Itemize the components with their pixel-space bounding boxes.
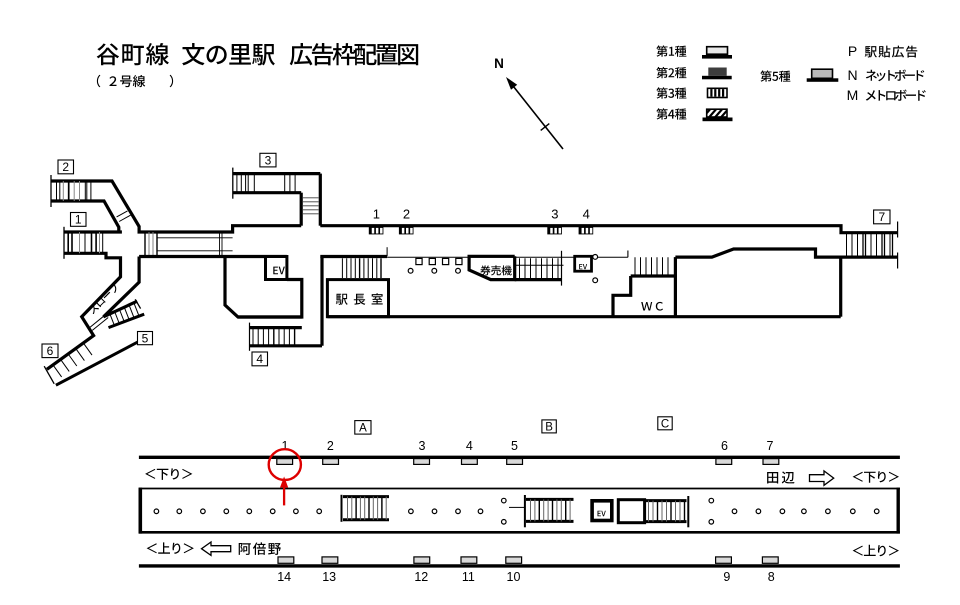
svg-text:2: 2 xyxy=(327,439,334,453)
svg-text:12: 12 xyxy=(414,570,428,584)
svg-text:4: 4 xyxy=(466,439,473,453)
svg-text:A: A xyxy=(359,422,367,434)
svg-text:3: 3 xyxy=(265,153,272,167)
svg-text:9: 9 xyxy=(723,570,730,584)
svg-text:M: M xyxy=(847,87,859,103)
svg-text:1: 1 xyxy=(373,207,380,222)
svg-text:10: 10 xyxy=(507,570,521,584)
svg-text:3: 3 xyxy=(551,207,558,222)
svg-text:3: 3 xyxy=(419,439,426,453)
svg-text:7: 7 xyxy=(767,439,774,453)
svg-text:8: 8 xyxy=(768,570,775,584)
svg-text:4: 4 xyxy=(583,207,590,222)
svg-text:6: 6 xyxy=(47,344,54,358)
svg-text:6: 6 xyxy=(721,439,728,453)
svg-text:1: 1 xyxy=(282,439,289,453)
svg-text:N: N xyxy=(494,56,504,71)
svg-text:14: 14 xyxy=(277,570,291,584)
svg-text:5: 5 xyxy=(511,439,518,453)
svg-text:N: N xyxy=(847,67,857,83)
svg-text:2: 2 xyxy=(62,160,69,174)
svg-text:13: 13 xyxy=(322,570,336,584)
svg-text:11: 11 xyxy=(462,570,475,584)
svg-text:1: 1 xyxy=(75,213,82,227)
svg-text:4: 4 xyxy=(256,352,263,366)
svg-text:2: 2 xyxy=(403,207,410,222)
svg-text:P: P xyxy=(848,43,857,59)
svg-text:C: C xyxy=(661,418,669,430)
svg-text:5: 5 xyxy=(142,331,149,345)
svg-text:7: 7 xyxy=(878,210,885,224)
svg-text:B: B xyxy=(545,422,553,434)
